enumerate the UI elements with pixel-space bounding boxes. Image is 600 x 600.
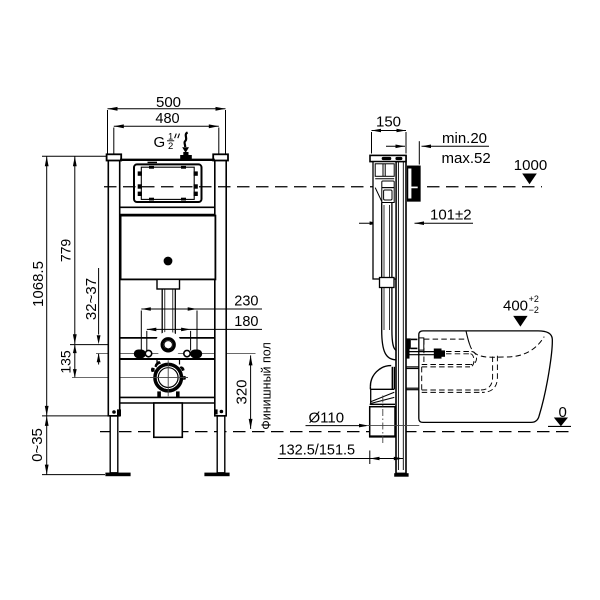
svg-text:2: 2 xyxy=(168,141,173,152)
svg-text:+2: +2 xyxy=(529,294,539,304)
svg-text:1068.5: 1068.5 xyxy=(30,261,47,307)
svg-text:180: 180 xyxy=(234,314,258,330)
svg-text:−2: −2 xyxy=(529,305,539,315)
svg-text:230: 230 xyxy=(234,294,258,310)
svg-text:500: 500 xyxy=(156,94,181,111)
svg-text:150: 150 xyxy=(376,114,401,131)
svg-text:0~35: 0~35 xyxy=(29,428,46,462)
svg-text:101±2: 101±2 xyxy=(430,207,472,224)
svg-text:400: 400 xyxy=(503,298,528,315)
svg-text:max.52: max.52 xyxy=(442,150,491,167)
svg-text:Ø110: Ø110 xyxy=(309,409,345,426)
svg-text:135: 135 xyxy=(58,350,74,374)
svg-text:1000: 1000 xyxy=(514,157,547,174)
svg-text:G: G xyxy=(154,134,166,151)
svg-text:779: 779 xyxy=(58,239,74,263)
svg-text:Финишный пол: Финишный пол xyxy=(260,342,274,429)
svg-text:min.20: min.20 xyxy=(442,130,487,147)
svg-text:32~37: 32~37 xyxy=(83,278,100,320)
svg-text:132.5/151.5: 132.5/151.5 xyxy=(279,442,356,458)
svg-text:480: 480 xyxy=(155,111,179,127)
svg-text:320: 320 xyxy=(234,379,251,404)
